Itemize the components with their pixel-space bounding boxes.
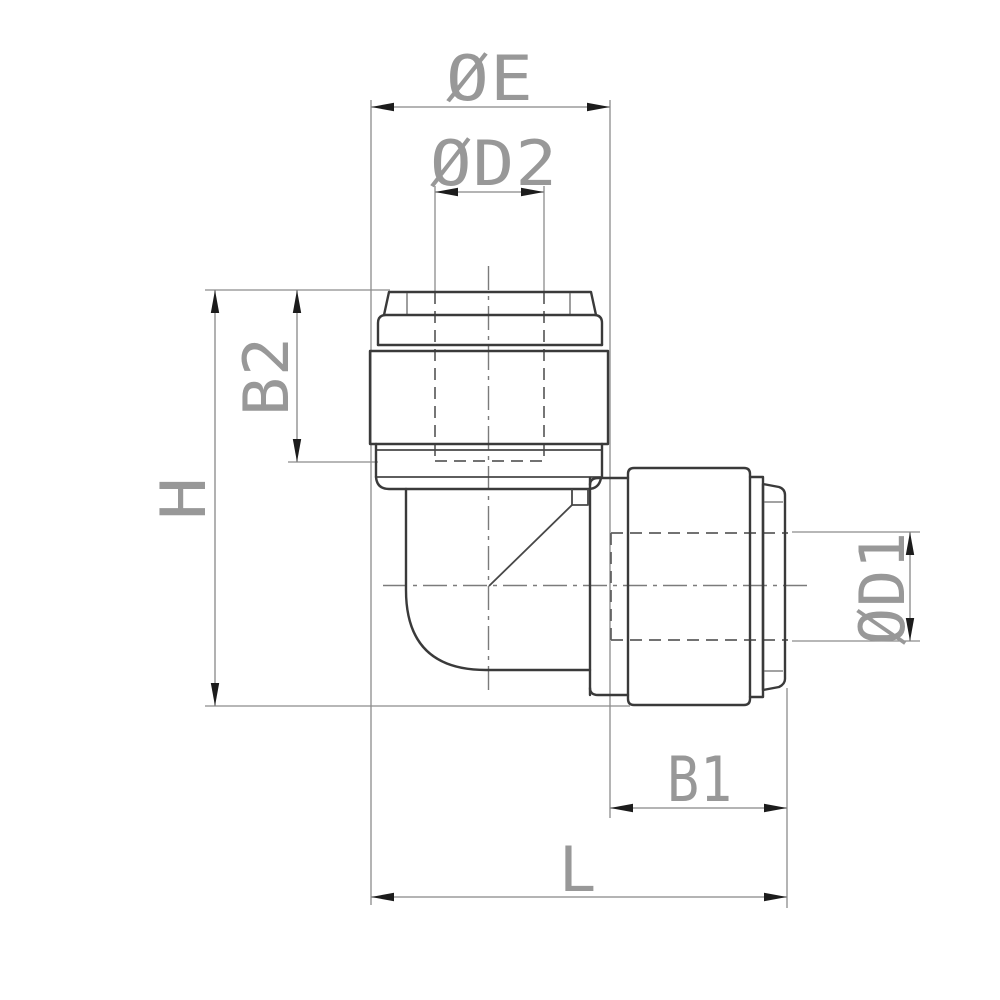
dimension-labels: ØE ØD2 B2 H ØD1 B1 L: [147, 42, 919, 906]
dim-label-od2: ØD2: [430, 127, 558, 200]
dim-label-od1: ØD1: [846, 531, 919, 645]
arrow-b1-right: [764, 804, 787, 812]
arrow-b2-bottom: [293, 439, 301, 462]
side-port-outline: [590, 468, 785, 705]
side-step-ring: [750, 477, 763, 697]
side-cap-band: [628, 468, 750, 705]
arrow-l-left: [371, 893, 394, 901]
arrow-h-bottom: [211, 683, 219, 706]
arrow-b1-left: [610, 804, 633, 812]
side-collet: [763, 484, 785, 690]
junction-diagonal-line: [489, 505, 572, 586]
dimension-arrows: [211, 103, 914, 901]
dim-label-oe: ØE: [446, 42, 534, 115]
top-cap-ring: [378, 315, 602, 345]
arrow-h-top: [211, 290, 219, 313]
dim-label-b1: B1: [667, 743, 733, 816]
dimension-lines: [215, 107, 910, 897]
arrow-b2-top: [293, 290, 301, 313]
elbow-body-outline: [406, 478, 590, 695]
drawing-canvas: ØE ØD2 B2 H ØD1 B1 L: [0, 0, 1000, 1000]
dim-label-h: H: [147, 476, 220, 520]
side-ring-bottom: [590, 688, 628, 695]
arrow-oe-left: [371, 103, 394, 111]
side-ring-top: [590, 478, 628, 485]
extension-lines: [205, 100, 920, 908]
elbow-fitting-drawing: ØE ØD2 B2 H ØD1 B1 L: [0, 0, 1000, 1000]
junction-detail-rect: [572, 489, 588, 505]
arrow-l-right: [764, 893, 787, 901]
top-collet: [384, 292, 596, 315]
arrow-oe-right: [587, 103, 610, 111]
elbow-body-left-arc: [406, 489, 590, 670]
dim-label-b2: B2: [230, 336, 303, 416]
dim-label-l: L: [559, 833, 597, 906]
